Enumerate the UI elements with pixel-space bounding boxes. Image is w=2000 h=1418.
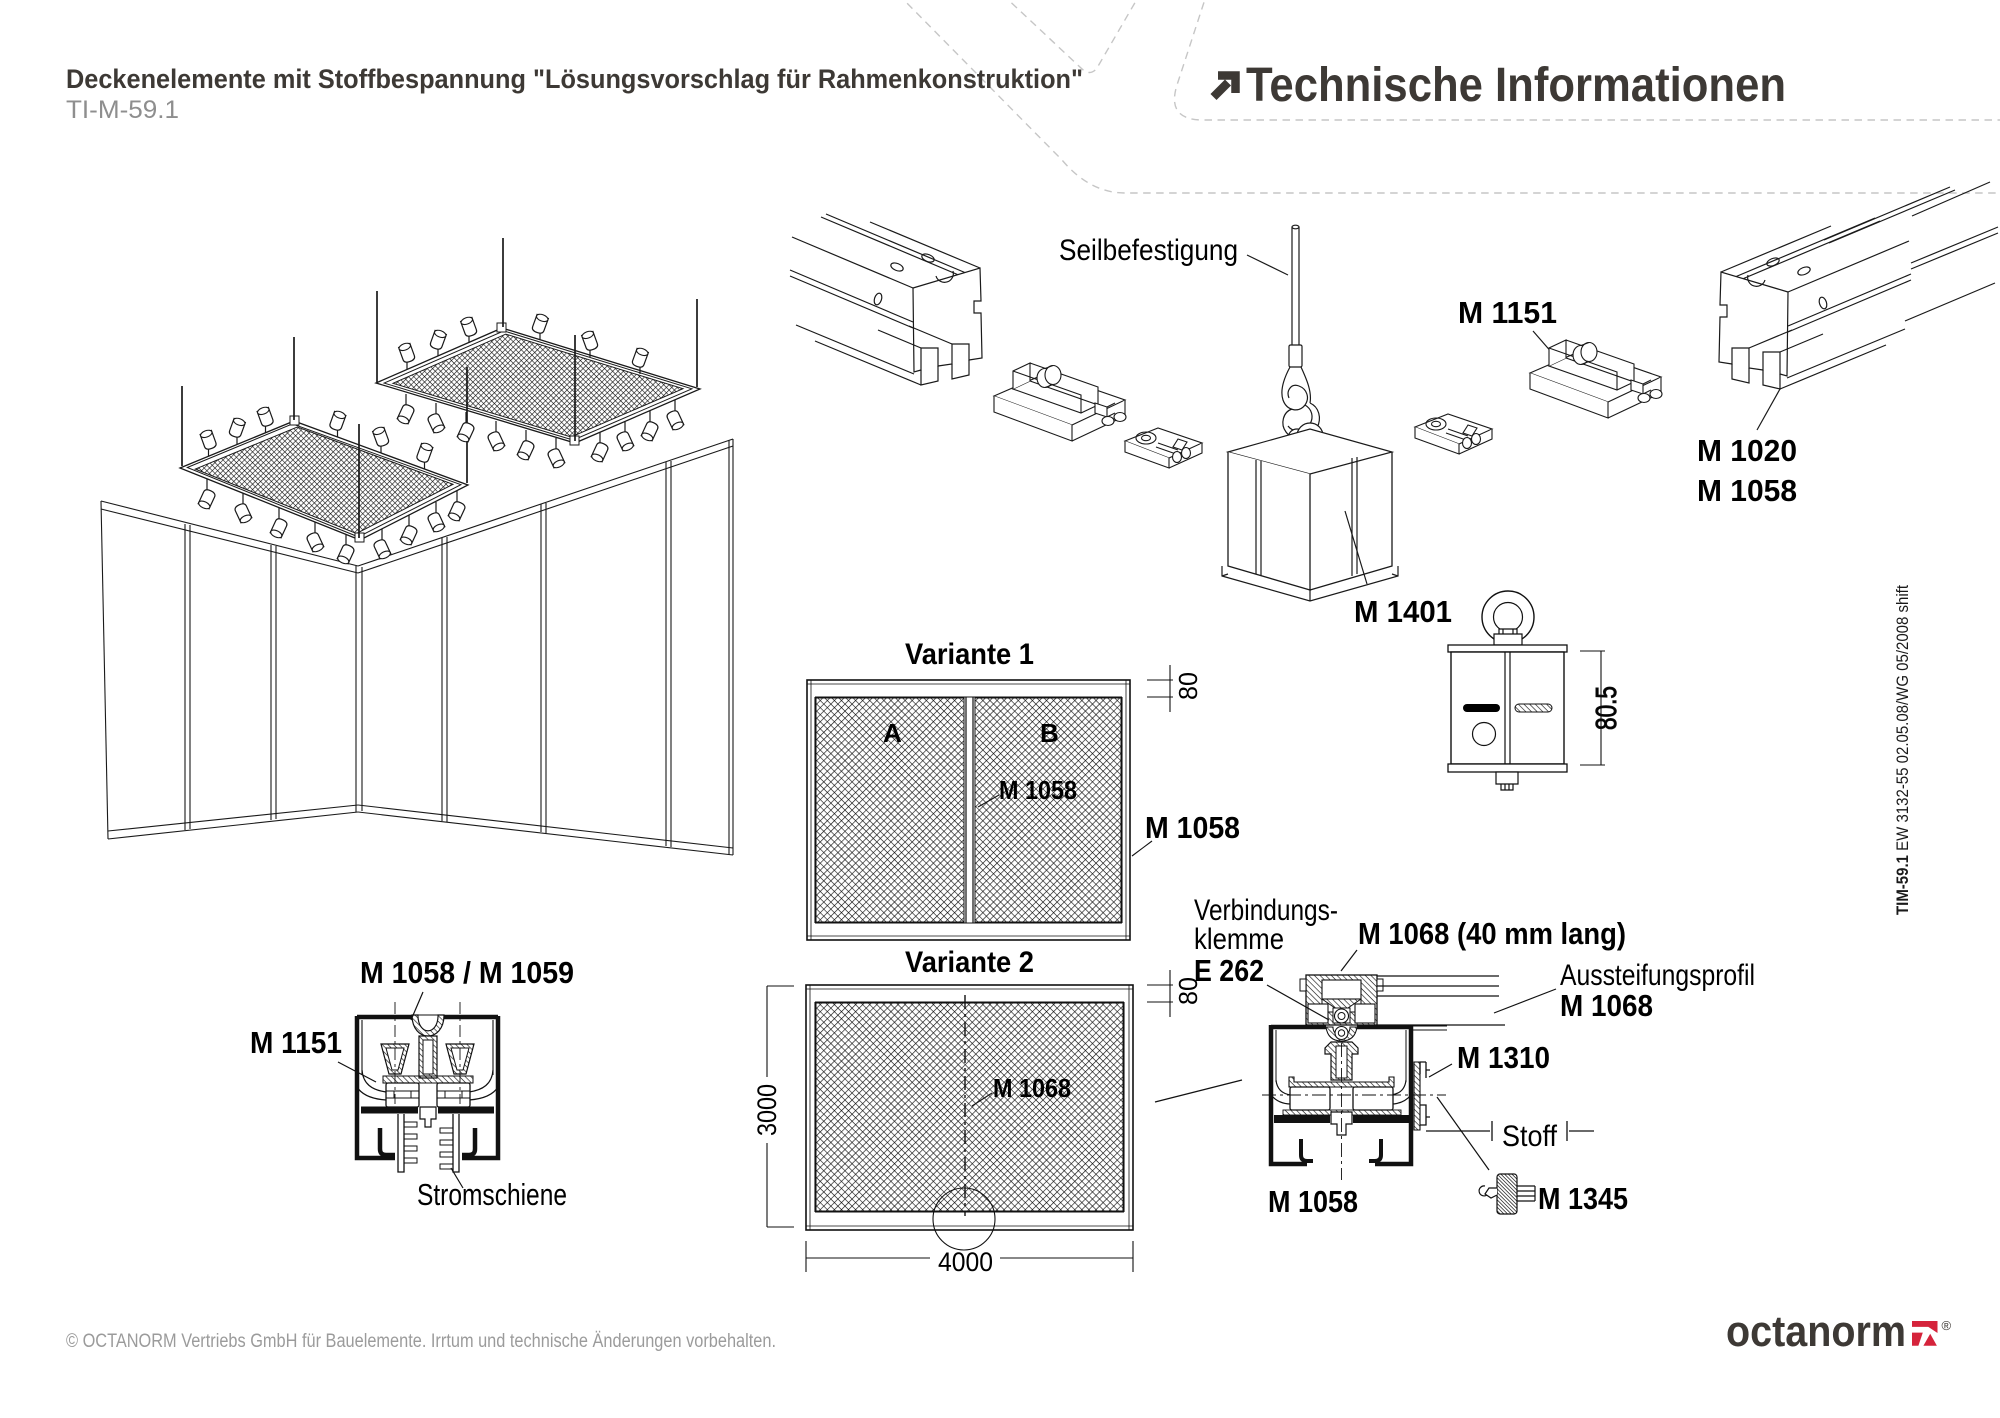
svg-text:Technische Informationen: Technische Informationen — [1246, 59, 1786, 112]
svg-text:TIM-59.1 EW 3132-55 02.05.08: TIM-59.1 EW 3132-55 02.05.08/WG 05/2008 … — [1893, 585, 1912, 915]
svg-text:M 1068 (40 mm lang): M 1068 (40 mm lang) — [1358, 916, 1626, 951]
svg-text:M 1058: M 1058 — [1697, 473, 1797, 508]
svg-text:A: A — [883, 718, 902, 748]
svg-text:4000: 4000 — [938, 1247, 993, 1277]
svg-text:Stromschiene: Stromschiene — [417, 1177, 567, 1212]
svg-text:M 1058 / M 1059: M 1058 / M 1059 — [360, 955, 574, 990]
svg-text:M 1058: M 1058 — [999, 775, 1077, 805]
svg-text:klemme: klemme — [1194, 923, 1284, 956]
svg-text:M 1401: M 1401 — [1354, 594, 1452, 629]
svg-text:Deckenelemente mit Stoffbespan: Deckenelemente mit Stoffbespannung "Lösu… — [66, 64, 1083, 94]
svg-text:M 1058: M 1058 — [1145, 810, 1240, 845]
svg-text:M 1345: M 1345 — [1538, 1181, 1628, 1216]
svg-text:M 1310: M 1310 — [1457, 1040, 1550, 1075]
svg-text:Seilbefestigung: Seilbefestigung — [1059, 234, 1238, 267]
svg-text:M 1020: M 1020 — [1697, 433, 1797, 468]
svg-text:Stoff: Stoff — [1502, 1120, 1558, 1153]
svg-text:E 262: E 262 — [1194, 953, 1264, 988]
svg-text:octanorm: octanorm — [1726, 1307, 1906, 1356]
svg-text:TI-M-59.1: TI-M-59.1 — [66, 96, 179, 124]
svg-text:M 1151: M 1151 — [250, 1025, 342, 1060]
svg-text:M 1068: M 1068 — [1560, 988, 1653, 1023]
svg-text:M 1058: M 1058 — [1268, 1184, 1358, 1219]
svg-text:3000: 3000 — [752, 1084, 782, 1136]
svg-text:M 1151: M 1151 — [1458, 295, 1557, 330]
svg-text:M 1068: M 1068 — [993, 1073, 1071, 1103]
svg-text:© OCTANORM Vertriebs GmbH für: © OCTANORM Vertriebs GmbH für Bauelement… — [66, 1331, 776, 1352]
svg-text:80: 80 — [1173, 672, 1203, 700]
svg-text:B: B — [1040, 718, 1059, 748]
svg-text:Variante 2: Variante 2 — [905, 946, 1034, 979]
svg-text:®: ® — [1942, 1318, 1952, 1333]
svg-text:Variante 1: Variante 1 — [905, 638, 1034, 671]
svg-text:80.5: 80.5 — [1591, 686, 1623, 730]
